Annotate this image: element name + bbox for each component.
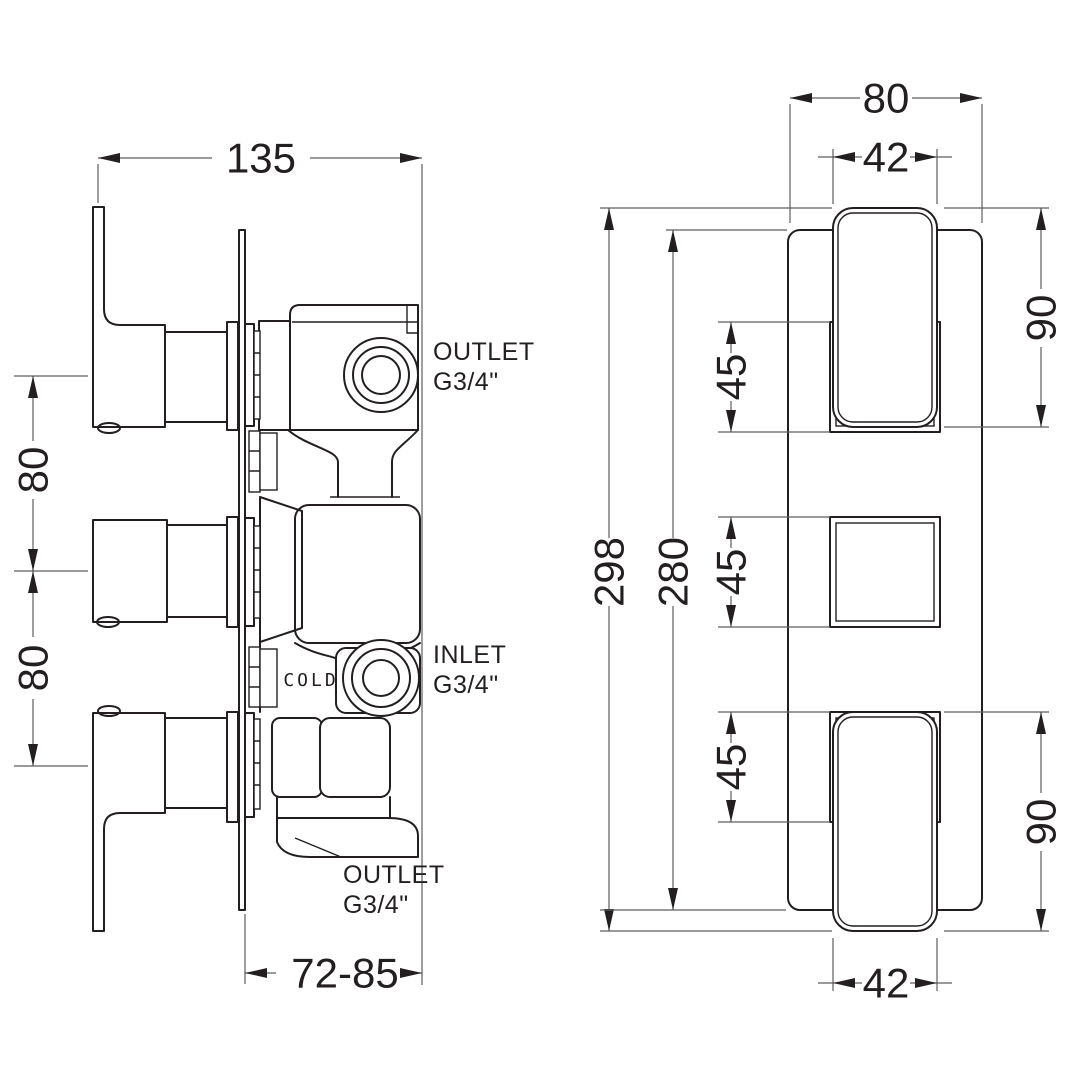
inlet-label-line1: INLET <box>433 641 506 669</box>
handle-mid-side <box>93 520 167 627</box>
body-curve-left <box>288 430 338 497</box>
thread-ladder-bottom <box>254 719 260 809</box>
outlet-port-top <box>344 338 418 412</box>
dim-80-spacing: 80 80 <box>10 376 89 766</box>
bottom-body-left <box>272 718 322 797</box>
dim-90-top-label: 90 <box>1018 295 1065 342</box>
bottom-body-right <box>320 718 390 797</box>
inlet-label-line2: G3/4" <box>433 671 499 699</box>
dim-280-label: 280 <box>650 537 697 607</box>
outlet-bottom-label-line1: OUTLET <box>343 861 445 889</box>
dim-42-bottom-label: 42 <box>863 960 910 1007</box>
outlet-top-label-line2: G3/4" <box>433 368 499 396</box>
bottom-elbow <box>277 818 418 857</box>
thread-ladder-top <box>254 331 260 419</box>
drawing-canvas: 135 80 80 72-85 OUTLET G3/4" INLET G3/4"… <box>0 0 1080 1080</box>
dim-90-bottom-label: 90 <box>1018 799 1065 846</box>
handle-bottom-side <box>93 706 165 931</box>
handle-neck-bottom <box>165 718 227 808</box>
handle-bottom-front <box>833 712 937 931</box>
technical-drawing: 135 80 80 72-85 OUTLET G3/4" INLET G3/4"… <box>0 0 1080 1080</box>
handle-top-front <box>833 208 937 427</box>
cold-marking: COLD <box>283 670 338 691</box>
escutcheon-bottom-side <box>227 712 238 822</box>
mount-block-upper <box>249 431 277 492</box>
dim-135-label: 135 <box>226 135 296 182</box>
outlet-bottom-label-line2: G3/4" <box>343 891 409 919</box>
dim-45-mid-label: 45 <box>708 549 755 596</box>
dim-80-lower-label: 80 <box>10 645 57 692</box>
handle-top-side <box>93 207 165 433</box>
body-curve-right <box>392 430 418 497</box>
inlet-port <box>343 640 419 716</box>
spacer-bottom <box>245 713 254 817</box>
lower-curve-left <box>295 643 335 658</box>
thread-ladder-mid <box>254 526 260 618</box>
escutcheon-mid-front <box>830 517 940 627</box>
dim-45-top-label: 45 <box>708 354 755 401</box>
mount-block-lower <box>249 647 277 707</box>
spacer-mid <box>245 518 254 626</box>
dim-42-top-label: 42 <box>863 134 910 181</box>
bottom-connectors <box>277 797 390 818</box>
escutcheon-mid-side <box>227 517 238 627</box>
middle-barrel <box>295 505 420 643</box>
cartridge-column <box>259 321 290 430</box>
dim-42-bottom: 42 <box>818 938 952 1007</box>
dim-298-label: 298 <box>586 537 633 607</box>
escutcheon-top-side <box>227 322 238 430</box>
dim-45-bottom-label: 45 <box>708 744 755 791</box>
side-view: 135 80 80 72-85 OUTLET G3/4" INLET G3/4"… <box>10 135 535 997</box>
dim-42-top: 42 <box>818 134 952 205</box>
dim-80-plate-label: 80 <box>863 75 910 122</box>
dim-72-85-label: 72-85 <box>291 950 398 997</box>
handle-neck-mid <box>167 525 227 617</box>
valve-body <box>259 305 420 857</box>
outlet-top-label-line1: OUTLET <box>433 338 535 366</box>
spacer-top <box>245 324 254 426</box>
handle-neck-top <box>165 332 227 422</box>
dim-80-upper-label: 80 <box>10 447 57 494</box>
front-view: 80 42 90 298 280 <box>586 75 1065 1007</box>
dim-72-85: 72-85 <box>245 914 422 997</box>
